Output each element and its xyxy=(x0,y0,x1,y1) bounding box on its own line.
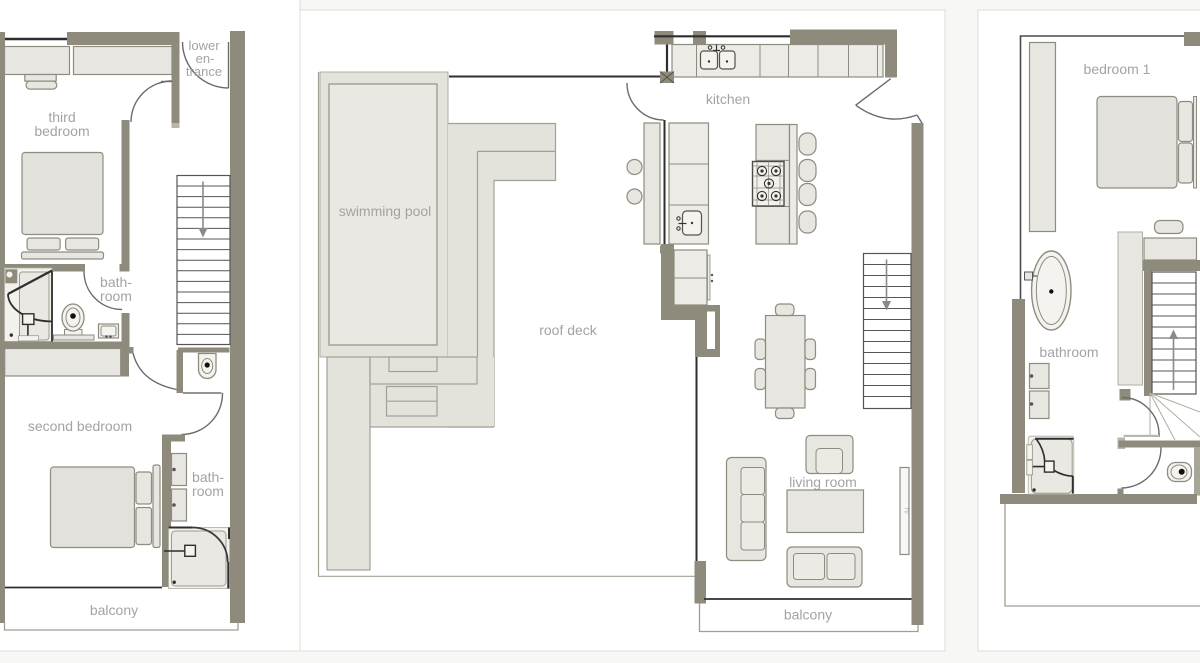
svg-text:bathroom: bathroom xyxy=(1039,344,1098,360)
svg-text:room: room xyxy=(192,483,224,499)
svg-text:balcony: balcony xyxy=(784,607,832,623)
svg-text:kitchen: kitchen xyxy=(706,91,750,107)
svg-text:bedroom: bedroom xyxy=(34,123,89,139)
svg-text:trance: trance xyxy=(186,64,222,79)
svg-text:room: room xyxy=(100,288,132,304)
svg-text:roof deck: roof deck xyxy=(539,322,598,338)
svg-text:TV: TV xyxy=(903,507,909,514)
svg-text:balcony: balcony xyxy=(90,602,138,618)
svg-text:second bedroom: second bedroom xyxy=(28,418,132,434)
svg-text:living room: living room xyxy=(789,474,857,490)
svg-text:bedroom 1: bedroom 1 xyxy=(1084,61,1151,77)
svg-text:swimming pool: swimming pool xyxy=(339,203,432,219)
